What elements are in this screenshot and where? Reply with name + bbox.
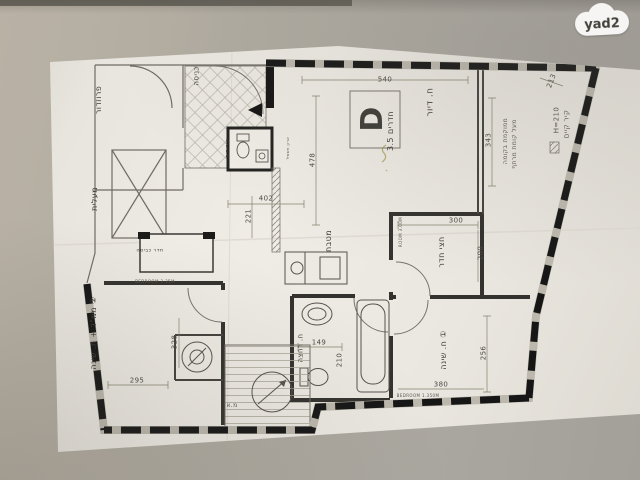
existing-wall: קיר קיים — [564, 110, 571, 139]
unit-letter: D — [358, 106, 388, 131]
half-room: חצי חדר — [438, 236, 446, 267]
dimension-540: 540 — [378, 77, 393, 84]
bedroom2-spec: BEDROOM 3.35M — [135, 280, 175, 284]
dimension-343: 343 — [486, 133, 493, 148]
dimension-300: 300 — [449, 218, 464, 225]
yad2-badge: yad2 — [567, 0, 637, 47]
yad2-logo-text: yad2 — [584, 16, 620, 33]
living-room: ח. דיור — [427, 88, 436, 117]
dimension-213: 213 — [546, 73, 558, 89]
entrance: כניסה — [194, 66, 201, 85]
dimension-210: 210 — [337, 353, 344, 368]
dimension-149: 149 — [312, 340, 327, 347]
bedroom-1: ח. שינה ① — [440, 330, 448, 370]
bedroom-2-mamad: ממ"ד + ח. שינה ② — [90, 296, 98, 369]
photo-edge-shadow — [0, 0, 352, 6]
kitchen: מטבח — [325, 230, 333, 252]
ac-unit: מ.א — [226, 403, 237, 409]
unit-type: חדרים 3.5 — [387, 111, 395, 151]
wall-height: H=210 — [554, 107, 561, 134]
dimension-478: 478 — [310, 153, 317, 168]
electric-closet: ארון חשמל — [286, 137, 290, 159]
dimension-402: 402 — [259, 196, 274, 203]
paper-sheet: Dחדרים 3.5ח. דיורמטבחחצי חדרח. שינה ①ממ"… — [0, 0, 640, 480]
halfroom-spec: ROOM 3.00M — [399, 217, 403, 247]
corridor: פרוזדור — [95, 86, 103, 114]
dimension-221: 221 — [246, 209, 253, 224]
dimension-328: 328 — [172, 335, 179, 350]
balcony-note-1: ממוקמת בקומה — [503, 118, 509, 164]
dimension-200: 200 — [478, 246, 485, 261]
photo-background: Dחדרים 3.5ח. דיורמטבחחצי חדרח. שינה ①ממ"… — [0, 0, 640, 480]
wc: שירותים — [226, 138, 231, 157]
bathroom: ח. רחצה — [298, 333, 305, 362]
dimension-380: 380 — [434, 382, 449, 389]
elevator: מעלית — [91, 187, 99, 211]
dimension-295: 295 — [130, 378, 145, 385]
laundry: חדר כביסה — [136, 249, 163, 254]
bedroom1-spec: BEDROOM 1.350M — [397, 394, 440, 398]
dimension-256: 256 — [481, 346, 488, 361]
labels-layer: Dחדרים 3.5ח. דיורמטבחחצי חדרח. שינה ①ממ"… — [0, 0, 640, 480]
balcony-note-2: מעל קומת מרתף — [512, 119, 518, 168]
